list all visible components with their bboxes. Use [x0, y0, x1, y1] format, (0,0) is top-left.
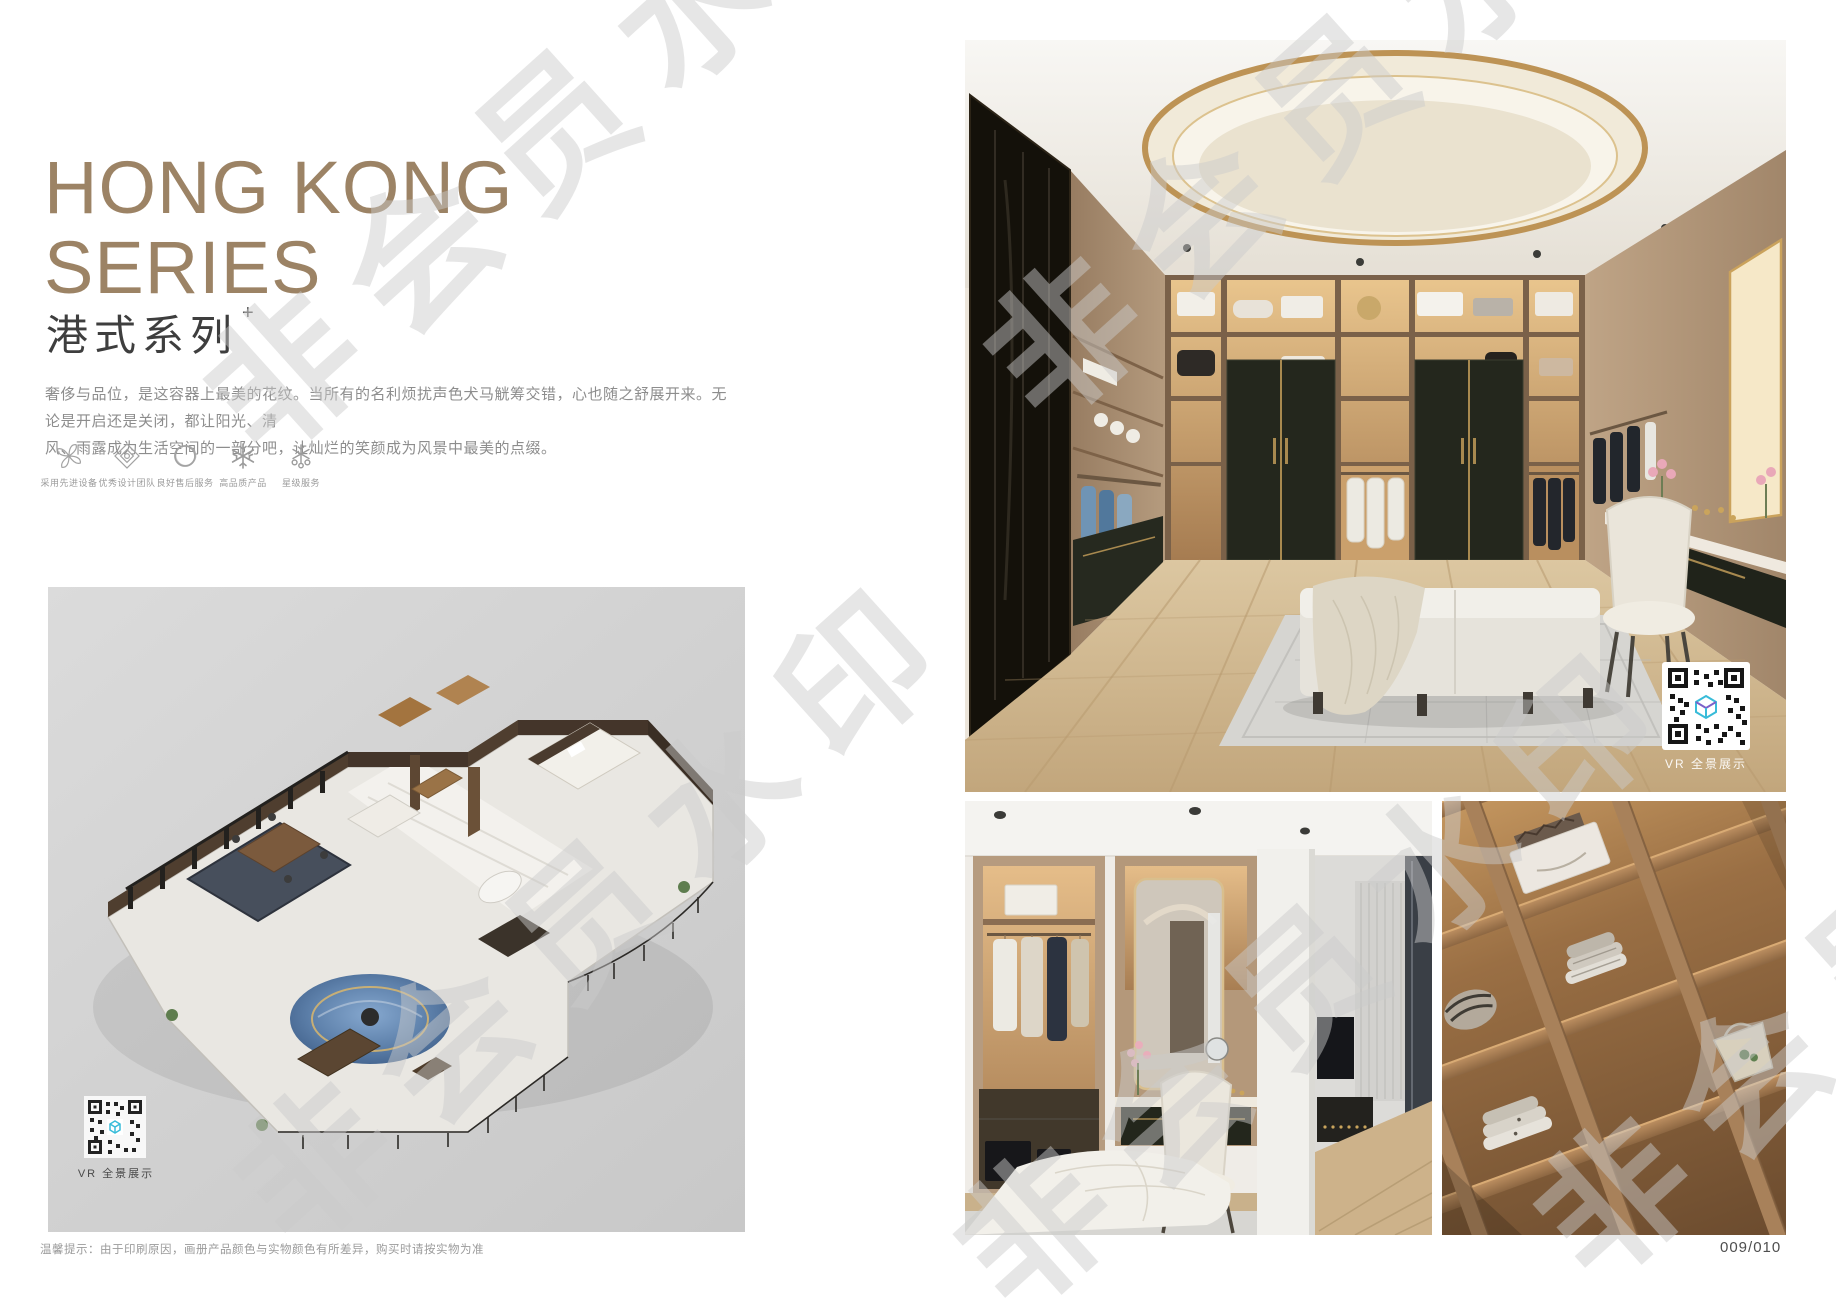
subtitle-cn: 港式系列	[46, 312, 238, 359]
shelf-closeup-render	[1442, 801, 1786, 1235]
flower-icon	[40, 441, 98, 471]
feature-label: 采用先进设备	[40, 476, 98, 489]
series-subtitle: 港式系列+	[46, 302, 250, 363]
showroom-photo-main: VR 全景展示	[965, 40, 1786, 792]
diamond-icon	[98, 441, 156, 471]
description-line1: 奢侈与品位，是这容器上最美的花纹。当所有的名利烦扰声色犬马觥筹交错，心也随之舒展…	[45, 381, 735, 435]
floorplan-vr-label: VR 全景展示	[64, 1165, 168, 1181]
feature-label: 高品质产品	[214, 476, 272, 489]
title-line2: SERIES	[44, 228, 513, 308]
footer-note: 温馨提示：由于印刷原因，画册产品颜色与实物颜色有所差异，购买时请按实物为准	[40, 1241, 484, 1257]
feature-label: 优秀设计团队	[98, 476, 156, 489]
series-title: HONG KONG SERIES	[44, 148, 513, 308]
feature-label: 良好售后服务	[156, 476, 214, 489]
star-service-icon	[272, 441, 330, 471]
ring-icon	[156, 441, 214, 471]
showroom-photo-dressing	[965, 801, 1432, 1235]
main-vr-label: VR 全景展示	[1654, 755, 1758, 772]
feature-design-team: 优秀设计团队	[98, 441, 156, 489]
catalog-page: HONG KONG SERIES 港式系列+ 奢侈与品位，是这容器上最美的花纹。…	[0, 0, 1836, 1307]
dressing-area-render	[965, 801, 1432, 1235]
main-qr-code	[1662, 662, 1750, 750]
feature-row: 采用先进设备 优秀设计团队 良好售后服务	[40, 441, 330, 489]
feature-after-sales: 良好售后服务	[156, 441, 214, 489]
subtitle-plus: +	[242, 302, 254, 324]
snowflake-icon	[214, 441, 272, 471]
showroom-photo-shelf	[1442, 801, 1786, 1235]
page-number: 009/010	[1720, 1239, 1781, 1256]
feature-advanced-equipment: 采用先进设备	[40, 441, 98, 489]
floorplan-qr-code	[84, 1096, 146, 1158]
feature-quality-product: 高品质产品	[214, 441, 272, 489]
title-line1: HONG KONG	[44, 148, 513, 228]
feature-star-service: 星级服务	[272, 441, 330, 489]
feature-label: 星级服务	[272, 476, 330, 489]
floorplan-render	[48, 587, 745, 1232]
floorplan-image: VR 全景展示	[48, 587, 745, 1232]
